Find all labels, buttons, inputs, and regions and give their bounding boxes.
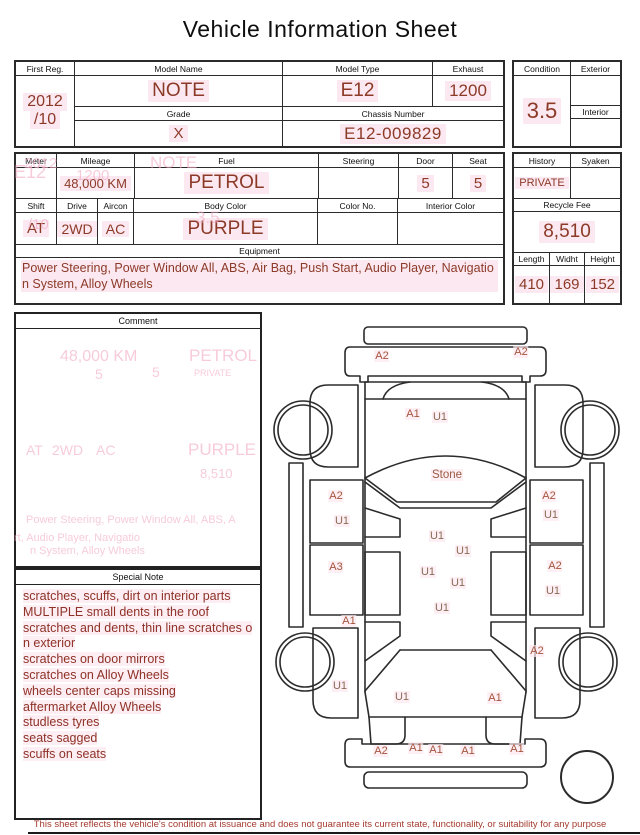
comment-body [16,329,260,337]
special-note-line: studless tyres [23,715,253,731]
damage-label: U1 [543,509,559,521]
seat-value: 5 [453,168,503,198]
special-note-line: aftermarket Alloy Wheels [23,700,253,716]
history-table: History Syaken PRIVATE Recycle Fee 8,510… [512,152,622,305]
recycle-fee-value: 8,510 [514,212,620,252]
condition-value: 3.5 [514,76,570,146]
door-label: Door [399,154,452,167]
exterior-value [571,76,620,105]
damage-label: A2 [328,490,343,502]
special-note-label: Special Note [16,570,260,585]
special-note-line: wheels center caps missing [23,684,253,700]
exhaust-label: Exhaust [433,62,503,75]
color-no-value [318,213,397,244]
interior-color-value [398,213,503,244]
interior-label: Interior [571,106,620,118]
fuel-value: PETROL [135,168,318,198]
interior-color-label: Interior Color [398,199,503,212]
meter-label: Meter [16,154,56,167]
drive-value: 2WD [57,213,97,244]
damage-label: A1 [509,743,524,755]
disclaimer-text: This sheet reflects the vehicle's condit… [0,819,640,830]
damage-label: U1 [394,691,410,703]
height-label: Height [585,253,620,265]
damage-label: A2 [513,346,528,358]
meter-value [16,168,56,198]
color-no-label: Color No. [318,199,397,212]
condition-table: Condition Exterior 3.5 Interior [512,60,622,148]
width-value: 169 [550,266,584,303]
history-value: PRIVATE [514,168,570,198]
door-value: 5 [399,168,452,198]
model-type-label: Model Type [283,62,432,75]
damage-label: U1 [432,411,448,423]
damage-label: A2 [541,490,556,502]
mileage-label: Mileage [57,154,134,167]
length-value: 410 [514,266,549,303]
aircon-label: Aircon [98,199,133,212]
damage-label: A1 [428,744,443,756]
mileage-value: 48,000 KM [57,168,134,198]
drive-label: Drive [57,199,97,212]
recycle-fee-label: Recycle Fee [514,199,620,211]
car-damage-diagram: A2A2A1U1StoneA2U1A3A1U1A2U1A2U1A2U1U1U1U… [270,315,640,805]
damage-label: U1 [429,530,445,542]
syaken-value [571,168,620,198]
vehicle-information-sheet: { "title": "Vehicle Information Sheet", … [0,0,640,835]
equipment-value: Power Steering, Power Window All, ABS, A… [16,258,503,303]
comment-box: Comment [14,312,262,568]
damage-label: U1 [334,515,350,527]
special-note-line: scuffs on seats [23,747,253,763]
damage-labels-layer: A2A2A1U1StoneA2U1A3A1U1A2U1A2U1A2U1U1U1U… [270,315,640,805]
special-note-body: scratches, scuffs, dirt on interior part… [16,585,260,767]
width-label: Widht [550,253,584,265]
model-name-value: NOTE [75,76,282,106]
damage-label: U1 [545,585,561,597]
steering-label: Steering [319,154,398,167]
chassis-number-value: E12-009829 [283,121,503,146]
damage-label: Stone [431,469,463,481]
aircon-value: AC [98,213,133,244]
first-reg-label: First Reg. [16,62,74,75]
damage-label: A2 [547,560,562,572]
seat-label: Seat [453,154,503,167]
special-note-line: seats sagged [23,731,253,747]
first-reg-value: 2012 /10 [16,76,74,146]
bottom-rule [28,832,640,834]
damage-label: A2 [373,745,388,757]
damage-label: A3 [328,561,343,573]
length-label: Length [514,253,549,265]
exhaust-value: 1200 [433,76,503,106]
damage-label: A1 [341,615,356,627]
fuel-label: Fuel [135,154,318,167]
special-note-line: scratches on door mirrors [23,652,253,668]
special-note-line: scratches, scuffs, dirt on interior part… [23,589,253,605]
special-note-line: scratches on Alloy Wheels [23,668,253,684]
condition-label: Condition [514,62,570,75]
body-color-value: PURPLE [134,213,317,244]
body-color-label: Body Color [134,199,317,212]
damage-label: A1 [408,742,423,754]
equipment-label: Equipment [16,245,503,257]
interior-value [571,119,620,146]
special-note-box: Special Note scratches, scuffs, dirt on … [14,568,262,820]
spec-table: Meter Mileage Fuel Steering Door Seat 48… [14,152,505,305]
shift-value: AT [16,213,56,244]
grade-value: X [75,121,282,146]
damage-label: U1 [434,602,450,614]
grade-label: Grade [75,107,282,120]
damage-label: U1 [420,566,436,578]
model-type-value: E12 [283,76,432,106]
registration-table: First Reg. Model Name Model Type Exhaust… [14,60,505,148]
damage-label: A2 [374,350,389,362]
steering-value [319,168,398,198]
damage-label: U1 [450,577,466,589]
chassis-number-label: Chassis Number [283,107,503,120]
damage-label: A1 [405,408,420,420]
syaken-label: Syaken [571,154,620,167]
damage-label: U1 [332,680,348,692]
special-note-line: scratches and dents, thin line scratches… [23,621,253,653]
comment-label: Comment [16,314,260,329]
damage-label: U1 [455,545,471,557]
model-name-label: Model Name [75,62,282,75]
damage-label: A1 [460,745,475,757]
shift-label: Shift [16,199,56,212]
exterior-label: Exterior [571,62,620,75]
damage-label: A1 [487,692,502,704]
height-value: 152 [585,266,620,303]
history-label: History [514,154,570,167]
damage-label: A2 [529,645,544,657]
special-note-line: MULTIPLE small dents in the roof [23,605,253,621]
page-title: Vehicle Information Sheet [0,16,640,43]
